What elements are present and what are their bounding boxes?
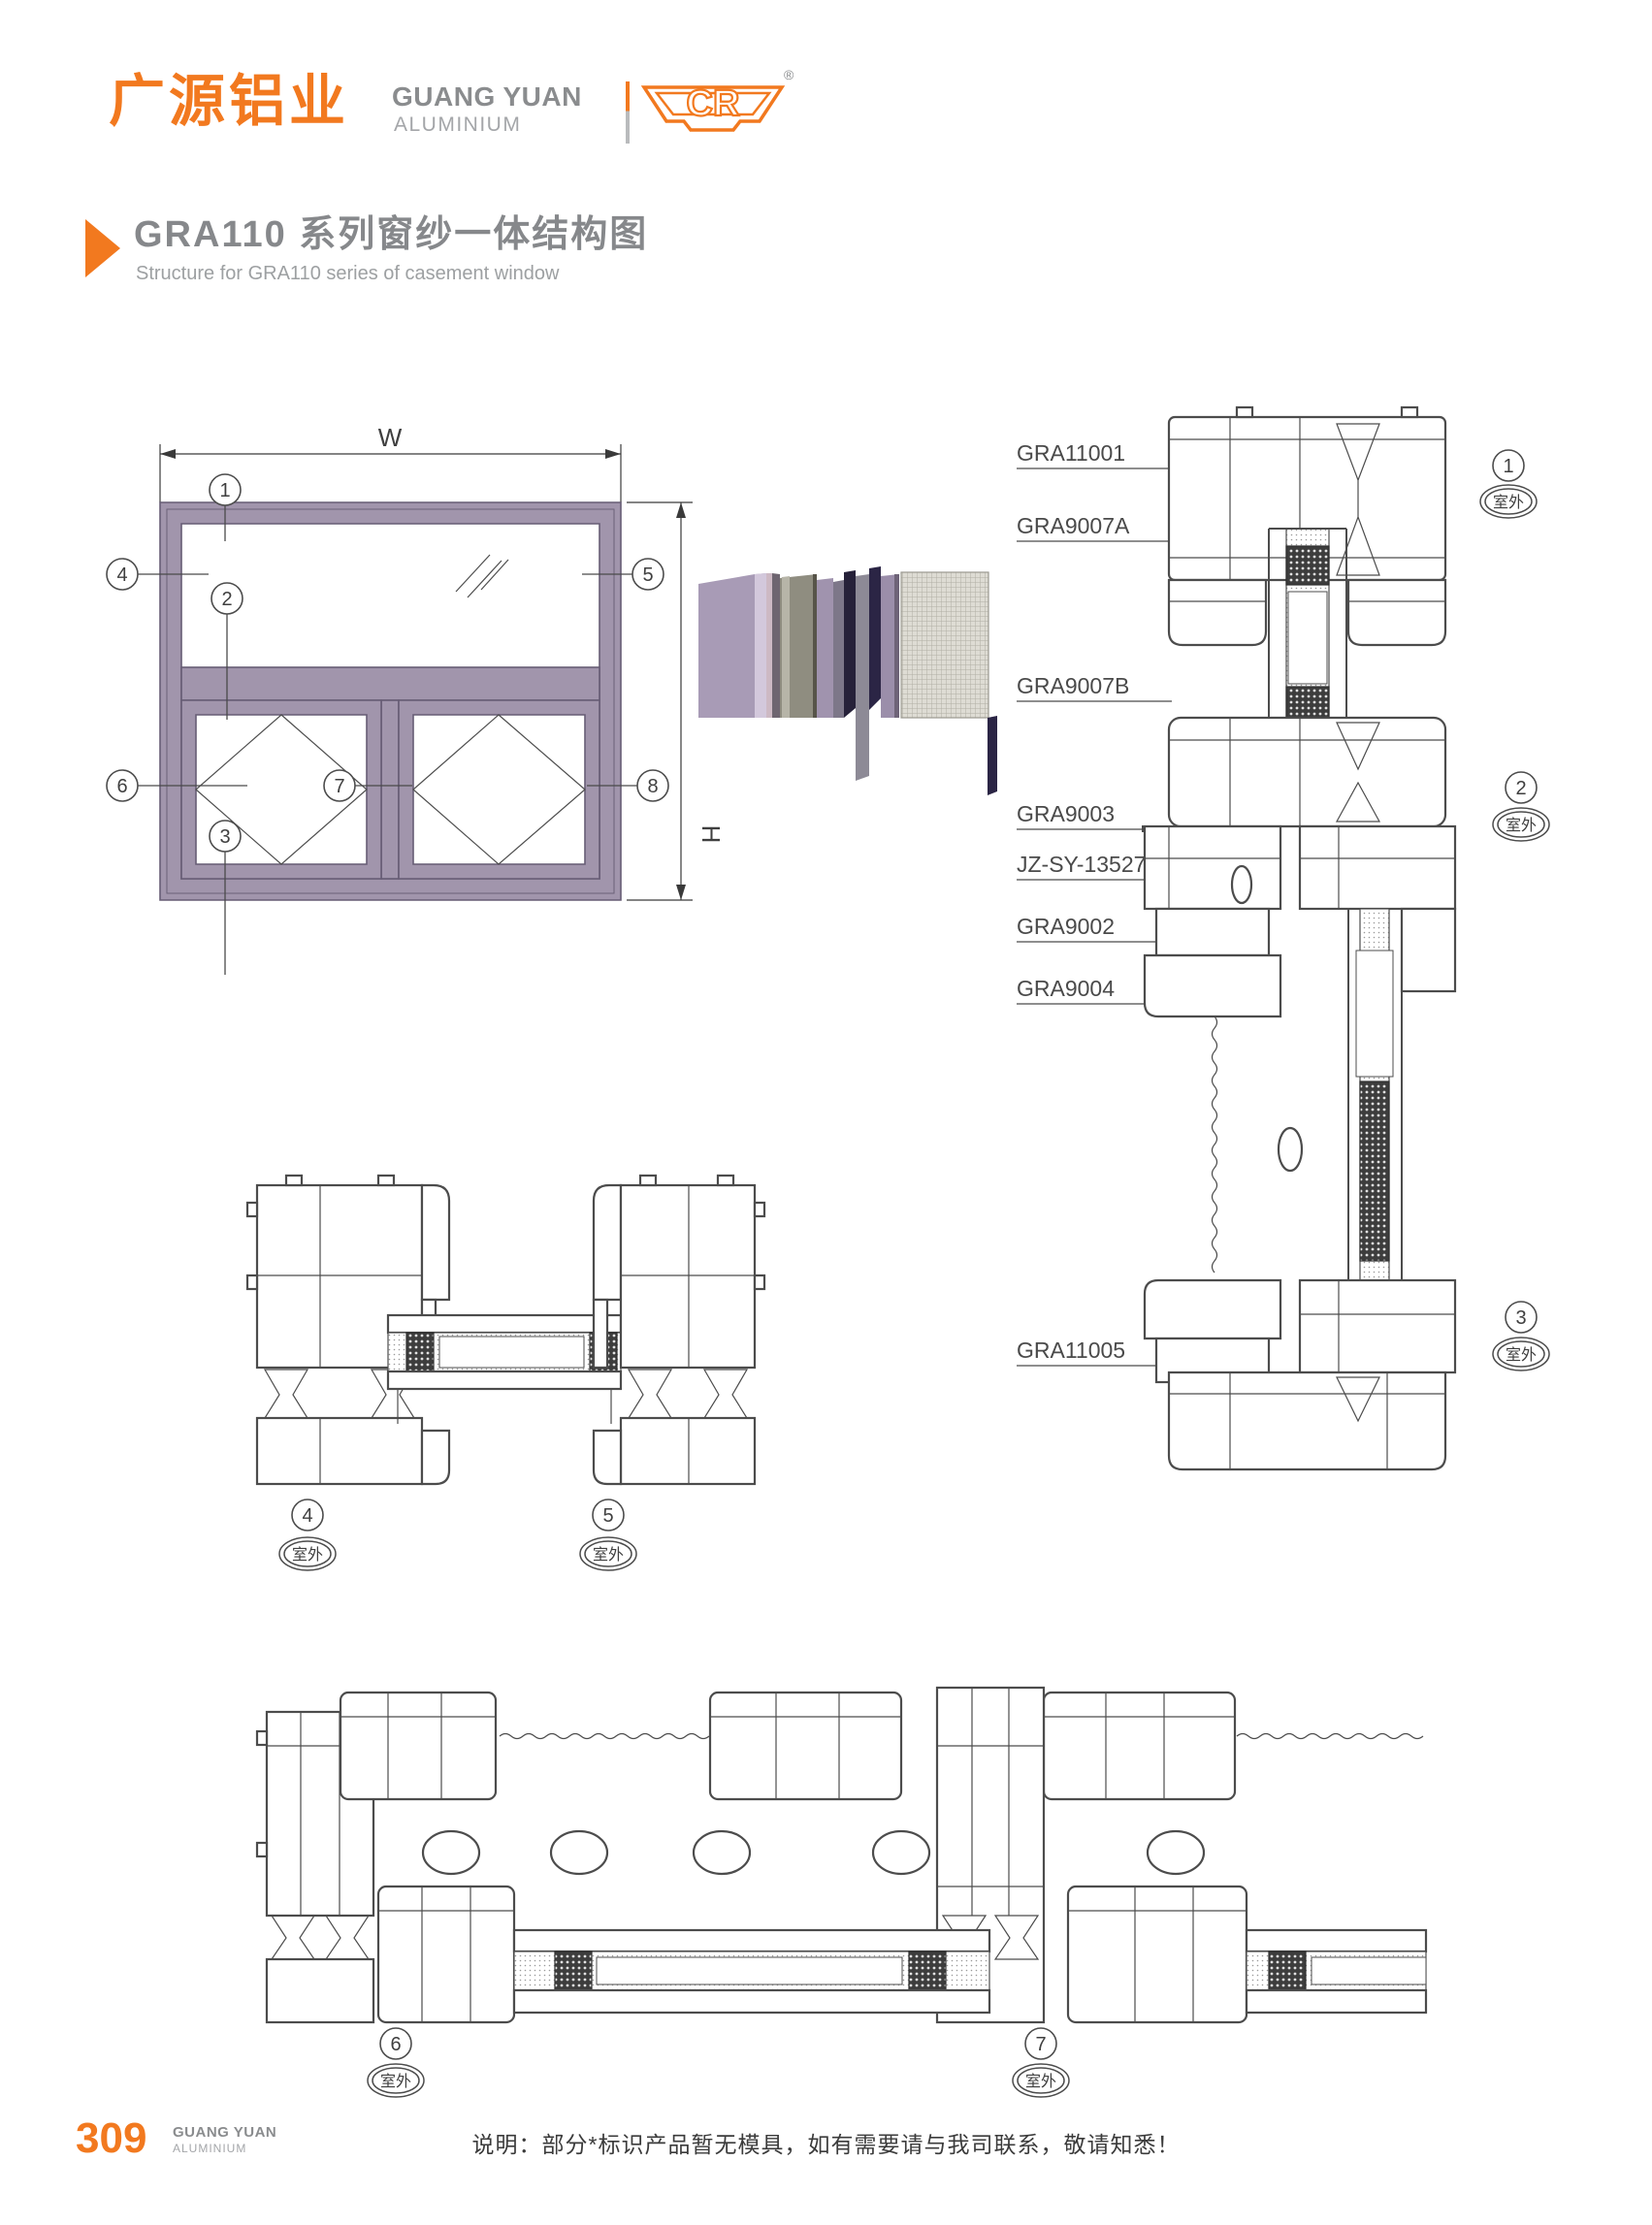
render-aluminium-slabs bbox=[698, 573, 833, 718]
callout-4: 4 bbox=[107, 559, 209, 590]
dim-h-label: H bbox=[696, 825, 726, 844]
section-marker-2-num: 2 bbox=[1515, 778, 1526, 799]
section-marker-7-num: 7 bbox=[1035, 2034, 1046, 2055]
mesh-wave-line-left bbox=[500, 1734, 709, 1739]
cr-badge-letters: CR bbox=[687, 83, 740, 124]
section-bottom-sash bbox=[1145, 1280, 1455, 1382]
section-marker-7: 7 室外 bbox=[1013, 2028, 1069, 2097]
section-glazing-unit-lower bbox=[1279, 909, 1402, 1280]
callout-4-num: 4 bbox=[116, 564, 127, 586]
section-sash-bottom-profile bbox=[1169, 718, 1445, 826]
outdoor-label: 室外 bbox=[1506, 1346, 1537, 1364]
section-marker-4: 4 室外 bbox=[279, 1499, 336, 1570]
roller-ovals bbox=[423, 1831, 1204, 1874]
horizontal-section-4-5: 4 室外 5 室外 bbox=[233, 1164, 776, 1610]
cr-brand-icon: CR ® bbox=[640, 64, 795, 145]
render-screen-mullion bbox=[881, 574, 899, 718]
right-sash bbox=[399, 700, 599, 879]
section-marker-6-num: 6 bbox=[390, 2034, 401, 2055]
footer-note: 说明：部分*标识产品暂无模具，如有需要请与我司联系，敬请知悉！ bbox=[0, 2126, 1652, 2159]
part-label-gra9003: GRA9003 bbox=[1017, 801, 1149, 832]
profile-3d-render bbox=[689, 533, 1009, 815]
part-label-gra9007b: GRA9007B bbox=[1017, 673, 1172, 701]
section-bottom-frame-profile bbox=[1169, 1372, 1445, 1469]
mesh-wave-line-right bbox=[1237, 1734, 1423, 1739]
section-meeting-rail-left bbox=[1145, 826, 1280, 1016]
logo-english-line1: GUANG YUAN bbox=[392, 83, 582, 111]
logo-divider bbox=[626, 81, 630, 144]
outdoor-label: 室外 bbox=[292, 1546, 323, 1564]
catalog-page: 广源铝业 GUANG YUAN ALUMINIUM CR ® GRA110 系列… bbox=[0, 0, 1652, 2225]
section-marker-5: 5 室外 bbox=[580, 1499, 636, 1570]
outdoor-label: 室外 bbox=[1025, 2073, 1056, 2090]
render-glass-tail bbox=[988, 716, 997, 795]
svg-text:GRA9004: GRA9004 bbox=[1017, 976, 1115, 1001]
glass-hatch-marks bbox=[456, 555, 508, 597]
callout-3-num: 3 bbox=[219, 826, 230, 848]
callout-7-num: 7 bbox=[334, 776, 344, 797]
section-marker-2: 2 室外 bbox=[1493, 772, 1549, 841]
dim-w-label: W bbox=[378, 423, 403, 452]
registered-mark: ® bbox=[784, 67, 794, 82]
callout-6-num: 6 bbox=[116, 776, 127, 797]
section-marker-3: 3 室外 bbox=[1493, 1302, 1549, 1370]
part-label-gra11005: GRA11005 bbox=[1017, 1338, 1172, 1366]
section-marker-6: 6 室外 bbox=[368, 2028, 424, 2097]
render-glazing-unit bbox=[833, 566, 881, 781]
glazing-bar-right bbox=[1247, 1930, 1426, 2013]
callout-8-num: 8 bbox=[647, 776, 658, 797]
transom-bar bbox=[181, 667, 599, 700]
window-schematic: W H bbox=[78, 417, 708, 999]
page-title: GRA110 系列窗纱一体结构图 bbox=[134, 215, 648, 256]
part-label-gra9002: GRA9002 bbox=[1017, 914, 1156, 942]
upper-sash-profiles bbox=[340, 1693, 1235, 1799]
page-subtitle: Structure for GRA110 series of casement … bbox=[136, 263, 559, 284]
svg-text:GRA11005: GRA11005 bbox=[1017, 1338, 1125, 1363]
glazing-bar-left bbox=[514, 1930, 989, 2013]
callout-5-num: 5 bbox=[642, 564, 653, 586]
section-marker-1-num: 1 bbox=[1503, 456, 1513, 477]
outdoor-label: 室外 bbox=[1493, 494, 1524, 511]
glazing-bar bbox=[388, 1315, 621, 1424]
svg-text:GRA9003: GRA9003 bbox=[1017, 801, 1115, 826]
svg-text:GRA9002: GRA9002 bbox=[1017, 914, 1115, 939]
svg-text:JZ-SY-13527: JZ-SY-13527 bbox=[1017, 852, 1146, 877]
outdoor-label: 室外 bbox=[380, 2073, 411, 2090]
callout-5: 5 bbox=[582, 559, 664, 590]
svg-text:GRA9007A: GRA9007A bbox=[1017, 513, 1130, 538]
logo-chinese: 广源铝业 bbox=[109, 74, 349, 130]
render-insect-mesh bbox=[901, 572, 988, 718]
outdoor-label: 室外 bbox=[593, 1546, 624, 1564]
svg-text:GRA11001: GRA11001 bbox=[1017, 440, 1125, 466]
section-marker-3-num: 3 bbox=[1515, 1307, 1526, 1329]
mullion bbox=[381, 700, 399, 879]
vertical-section-drawing: GRA11001 GRA9007A GRA9007B GRA9003 JZ-SY… bbox=[1009, 403, 1649, 1484]
callout-2-num: 2 bbox=[221, 589, 232, 610]
section-marker-5-num: 5 bbox=[602, 1505, 613, 1527]
section-marker-4-num: 4 bbox=[302, 1505, 312, 1527]
horizontal-section-6-7: 6 室外 7 室外 bbox=[233, 1639, 1445, 2105]
svg-text:GRA9007B: GRA9007B bbox=[1017, 673, 1129, 698]
title-arrow-icon bbox=[85, 219, 120, 277]
logo-english-line2: ALUMINIUM bbox=[394, 114, 521, 135]
outdoor-label: 室外 bbox=[1506, 817, 1537, 834]
section-marker-1: 1 室外 bbox=[1480, 450, 1537, 518]
callout-1-num: 1 bbox=[219, 480, 230, 501]
flyscreen-wave-line bbox=[1213, 1016, 1217, 1273]
